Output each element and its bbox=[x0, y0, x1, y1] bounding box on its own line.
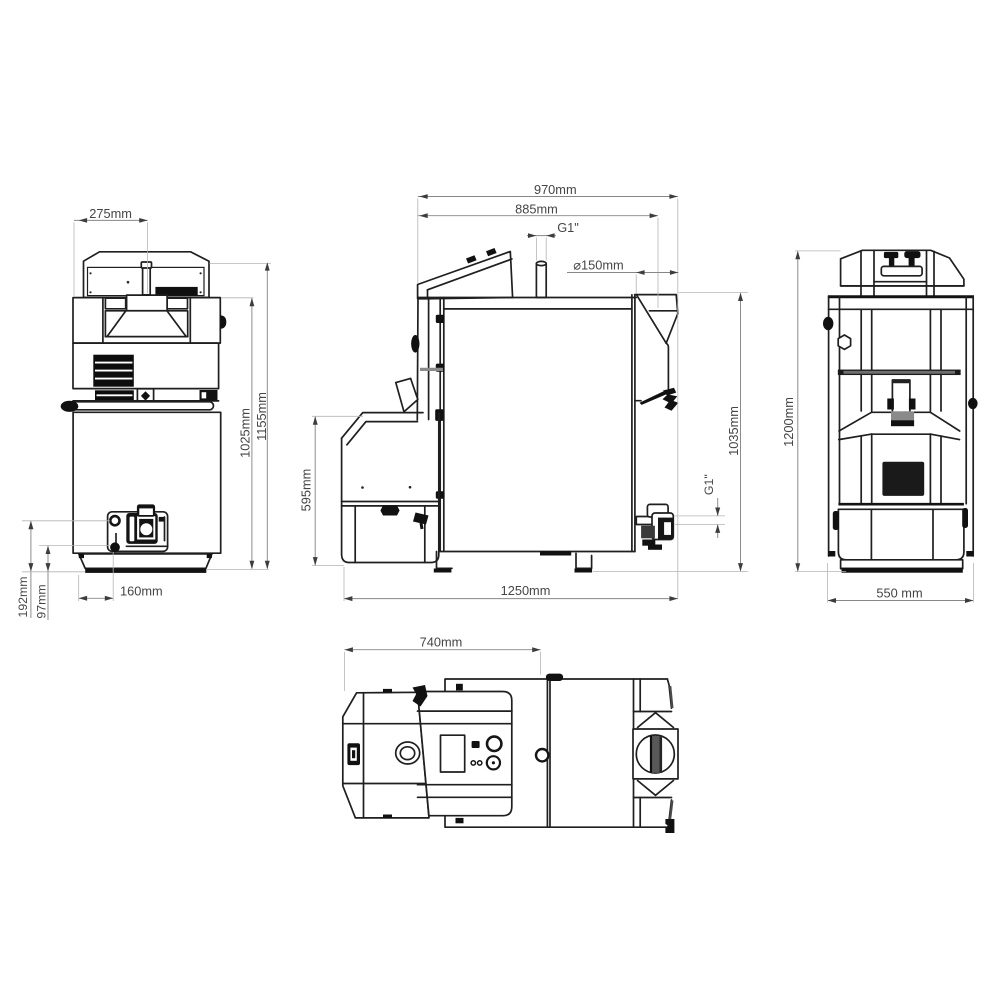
svg-text:G1": G1" bbox=[557, 220, 579, 235]
svg-text:275mm: 275mm bbox=[89, 206, 132, 221]
svg-text:1025mm: 1025mm bbox=[238, 408, 253, 458]
svg-text:160mm: 160mm bbox=[120, 584, 163, 599]
svg-text:1200mm: 1200mm bbox=[781, 397, 796, 447]
svg-text:550 mm: 550 mm bbox=[876, 586, 922, 601]
svg-text:970mm: 970mm bbox=[534, 182, 577, 197]
svg-text:⌀150mm: ⌀150mm bbox=[573, 258, 623, 273]
svg-text:740mm: 740mm bbox=[420, 634, 463, 649]
svg-text:885mm: 885mm bbox=[515, 201, 558, 216]
svg-text:1250mm: 1250mm bbox=[501, 583, 551, 598]
svg-text:1155mm: 1155mm bbox=[254, 392, 269, 441]
svg-text:1035mm: 1035mm bbox=[726, 406, 741, 456]
svg-text:192mm: 192mm bbox=[16, 576, 30, 617]
svg-text:97mm: 97mm bbox=[34, 584, 48, 618]
svg-text:G1": G1" bbox=[702, 474, 716, 495]
svg-text:595mm: 595mm bbox=[299, 469, 314, 512]
